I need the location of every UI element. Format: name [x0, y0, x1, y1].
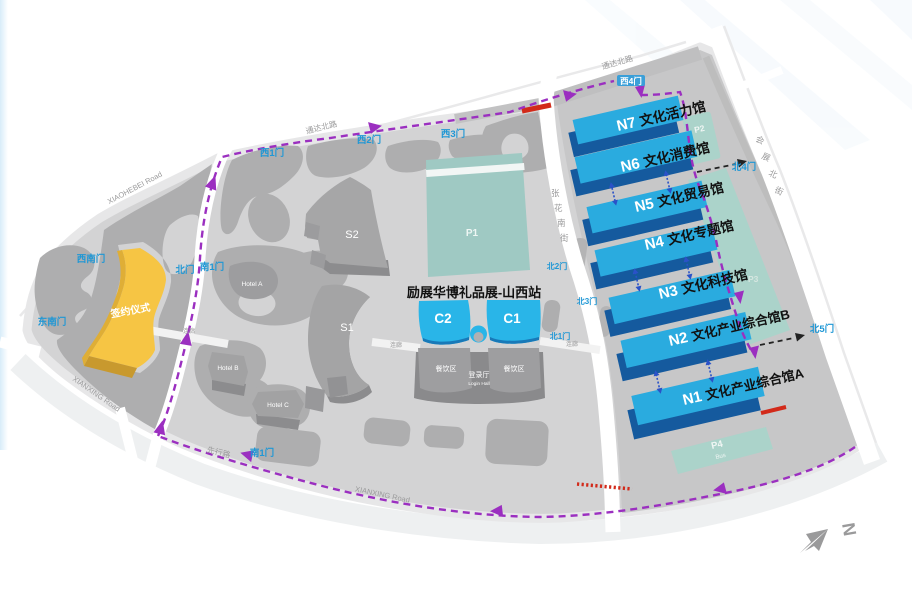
svg-text:北5门: 北5门: [810, 323, 834, 335]
svg-text:S1: S1: [340, 322, 353, 334]
svg-text:C2: C2: [434, 311, 451, 326]
svg-text:西3门: 西3门: [441, 128, 465, 140]
svg-text:南: 南: [557, 218, 566, 228]
svg-text:西1门: 西1门: [260, 147, 284, 159]
svg-text:西4门: 西4门: [620, 76, 642, 86]
svg-text:餐饮区: 餐饮区: [436, 364, 457, 373]
svg-text:P1: P1: [466, 228, 479, 239]
svg-text:Hotel A: Hotel A: [242, 281, 264, 288]
svg-text:C1: C1: [503, 311, 521, 326]
svg-text:Login Hall: Login Hall: [468, 381, 489, 387]
svg-text:北2门: 北2门: [547, 261, 567, 271]
svg-text:登录厅: 登录厅: [469, 370, 490, 379]
svg-text:街: 街: [560, 233, 569, 243]
svg-text:Hotel B: Hotel B: [217, 365, 238, 372]
svg-text:连廊: 连廊: [566, 340, 578, 348]
svg-text:花: 花: [554, 203, 563, 213]
svg-text:餐饮区: 餐饮区: [504, 364, 525, 373]
svg-text:连廊: 连廊: [390, 341, 402, 349]
svg-text:张: 张: [551, 188, 560, 198]
svg-text:连廊: 连廊: [183, 327, 195, 335]
svg-text:Hotel C: Hotel C: [267, 402, 289, 409]
svg-text:北1门: 北1门: [550, 331, 570, 341]
svg-text:北门: 北门: [175, 264, 194, 276]
svg-text:P3: P3: [748, 274, 759, 284]
svg-text:北4门: 北4门: [732, 161, 756, 173]
svg-text:励展华博礼品展-山西站: 励展华博礼品展-山西站: [407, 285, 541, 300]
svg-text:北3门: 北3门: [577, 296, 597, 306]
svg-text:S2: S2: [345, 229, 358, 241]
svg-text:西南门: 西南门: [77, 253, 106, 265]
svg-text:西2门: 西2门: [357, 134, 381, 146]
svg-text:东南门: 东南门: [38, 316, 67, 328]
svg-text:南1门: 南1门: [250, 447, 274, 459]
svg-text:南1门: 南1门: [200, 261, 224, 273]
